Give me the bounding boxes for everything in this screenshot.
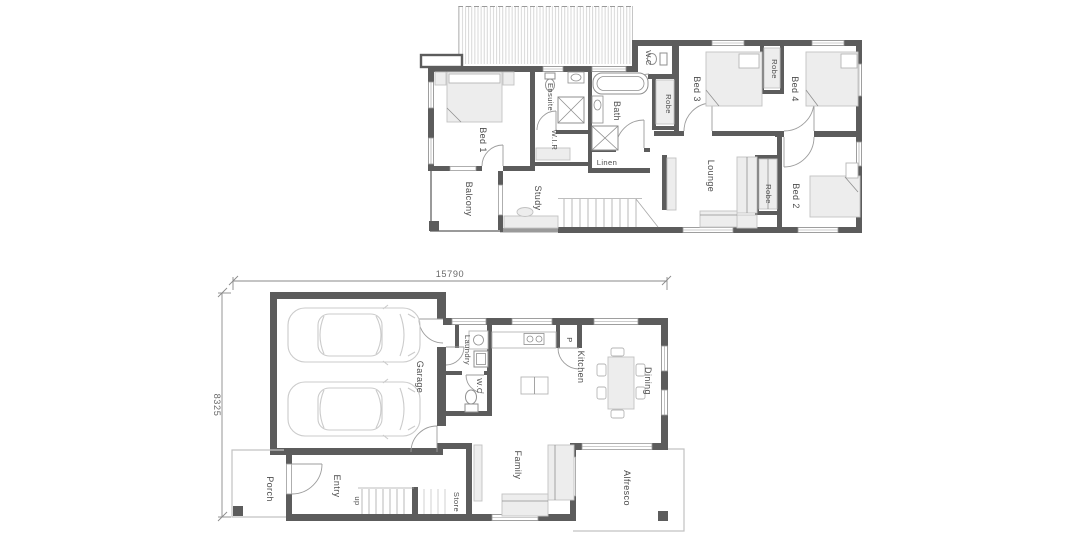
porch-outline (232, 450, 286, 517)
dining-table (597, 348, 645, 418)
room-label-robe-bed3: Robe (664, 94, 673, 114)
alfresco-post (658, 511, 668, 521)
study-desk (504, 208, 558, 229)
bed2-furniture (810, 163, 860, 217)
room-label-kitchen: Kitchen (576, 351, 586, 384)
room-label-pantry: P (565, 337, 574, 342)
room-label-garage: Garage (415, 361, 425, 393)
balcony-post (429, 221, 439, 231)
dimension-width: 15790 (229, 269, 671, 290)
bed3-furniture (706, 52, 762, 106)
room-label-bed1: Bed 1 (478, 127, 488, 153)
family-furniture (474, 445, 574, 516)
ground-floor-plan: 15790 8325 (212, 269, 684, 531)
dimension-depth: 8325 (212, 288, 231, 521)
kitchen-fixtures (492, 332, 556, 394)
bed4-furniture (806, 52, 858, 106)
upper-stairs (558, 199, 658, 228)
planter-box (421, 55, 462, 67)
bed1-furniture (435, 72, 514, 122)
room-label-linen: Linen (597, 158, 618, 167)
room-label-dining: Dining (643, 367, 653, 395)
floor-plan-canvas: Bed 1 Balcony Ensuite W.I.R Study Bath L… (0, 0, 1080, 540)
room-label-alfresco: Alfresco (622, 470, 632, 506)
room-label-balcony: Balcony (464, 182, 474, 217)
dimension-width-value: 15790 (436, 269, 465, 279)
car-2 (288, 379, 420, 439)
car-1 (288, 305, 420, 365)
room-label-entry: Entry (332, 474, 342, 497)
room-label-ensuite: Ensuite (546, 83, 555, 111)
ground-stairs (358, 488, 445, 514)
room-label-bed3: Bed 3 (692, 76, 702, 102)
dimension-depth-value: 8325 (212, 394, 222, 417)
room-label-store: Store (452, 492, 461, 512)
room-label-porch: Porch (265, 476, 275, 502)
room-label-robe-bed34: Robe (770, 59, 779, 79)
room-label-robe-bed2: Robe (764, 184, 773, 204)
room-label-laundry: Laundry (463, 335, 472, 365)
upper-floor-plan: Bed 1 Balcony Ensuite W.I.R Study Bath L… (421, 6, 862, 233)
room-label-lounge: Lounge (706, 160, 716, 192)
room-label-wir: W.I.R (550, 130, 559, 151)
room-label-bath: Bath (612, 101, 622, 121)
floor-plan-page: Bed 1 Balcony Ensuite W.I.R Study Bath L… (0, 0, 1080, 540)
room-label-wc-upper: W.C (644, 50, 653, 66)
room-label-study: Study (533, 185, 543, 210)
room-label-bed2: Bed 2 (791, 183, 801, 209)
room-label-family: Family (513, 451, 523, 480)
room-label-bed4: Bed 4 (790, 76, 800, 102)
room-label-wc-ground: W.C (475, 378, 484, 394)
roof-hatch (458, 6, 633, 64)
porch-post (233, 506, 243, 516)
stairs-up-label: up (353, 496, 362, 505)
